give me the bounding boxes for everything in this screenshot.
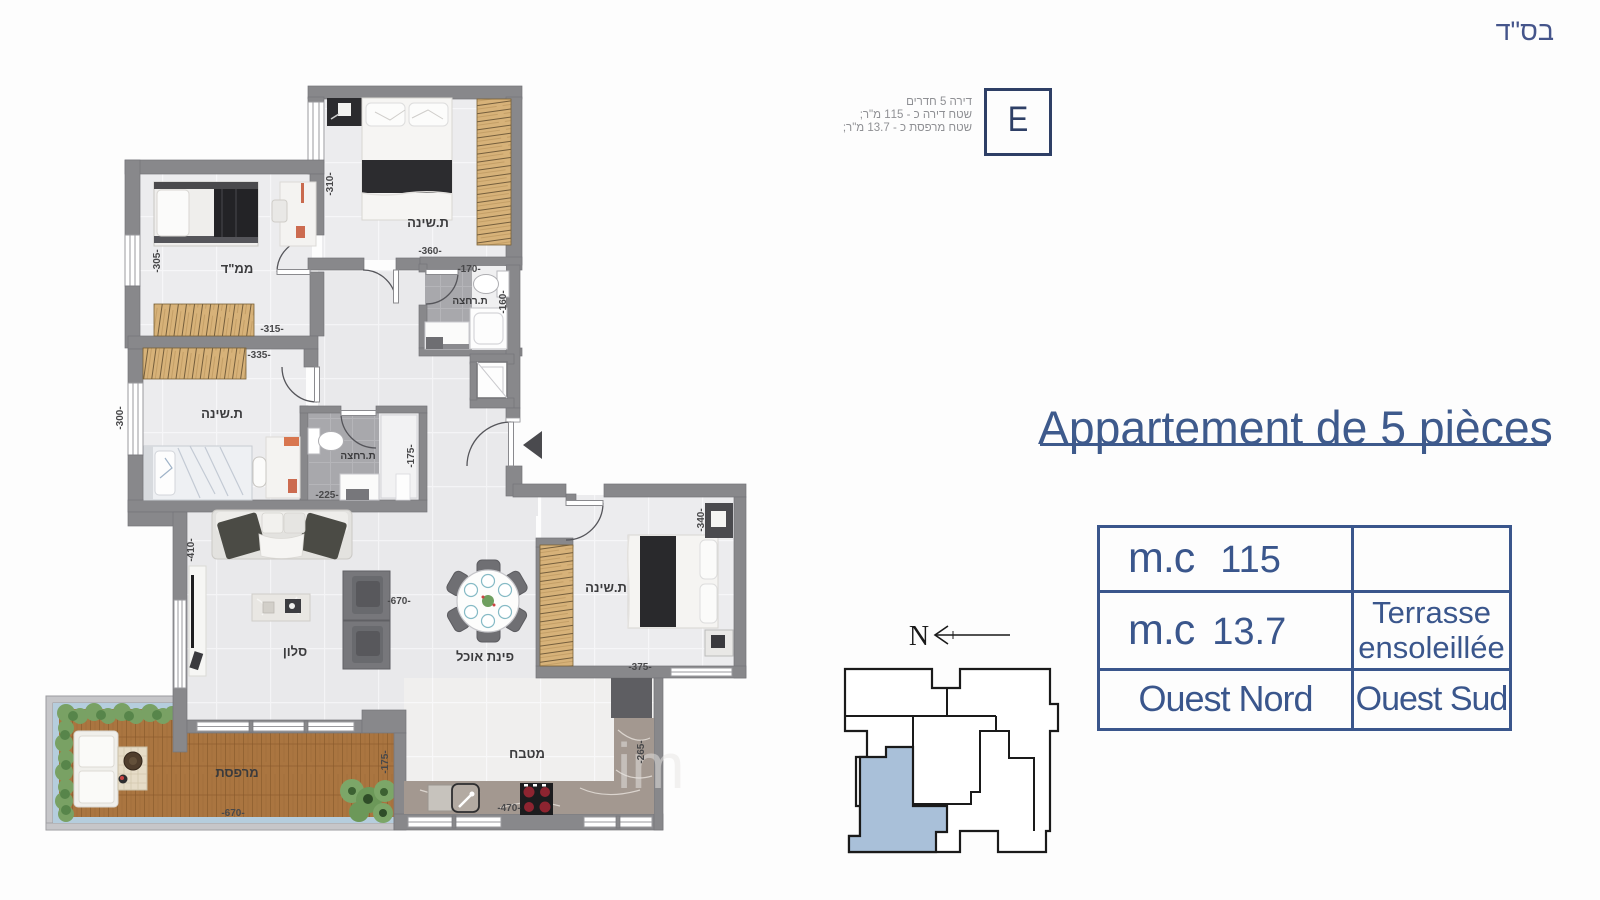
svg-text:-265-: -265- (636, 740, 647, 763)
svg-text:-375-: -375- (628, 662, 651, 673)
svg-text:-670-: -670- (221, 808, 244, 819)
svg-text:-305-: -305- (152, 249, 163, 272)
svg-text:ת.רחצה: ת.רחצה (452, 296, 487, 307)
svg-text:-315-: -315- (260, 324, 283, 335)
svg-text:-175-: -175- (406, 444, 417, 467)
svg-text:-310-: -310- (325, 172, 336, 195)
svg-text:-175-: -175- (380, 750, 391, 773)
svg-text:ת.שינה: ת.שינה (407, 215, 449, 230)
svg-text:ת.רחצה: ת.רחצה (340, 451, 375, 462)
svg-text:ת.שינה: ת.שינה (201, 406, 243, 421)
svg-text:-340-: -340- (696, 508, 707, 531)
svg-text:-300-: -300- (115, 406, 126, 429)
svg-text:-170-: -170- (457, 264, 480, 275)
svg-text:-670-: -670- (387, 596, 410, 607)
svg-text:im: im (617, 730, 685, 802)
svg-text:-335-: -335- (247, 350, 270, 361)
svg-text:פינת אוכל: פינת אוכל (456, 649, 514, 664)
svg-text:-360-: -360- (418, 246, 441, 257)
svg-text:-160-: -160- (498, 290, 509, 313)
svg-text:N: N (909, 621, 929, 652)
svg-text:ת.שינה: ת.שינה (585, 580, 627, 595)
svg-text:-225-: -225- (315, 490, 338, 501)
svg-text:-410-: -410- (186, 538, 197, 561)
svg-text:מטבח: מטבח (509, 746, 545, 761)
svg-text:סלון: סלון (283, 644, 307, 659)
svg-text:מרפסת: מרפסת (215, 765, 258, 780)
svg-text:ממ"ד: ממ"ד (221, 261, 254, 276)
svg-text:-470-: -470- (497, 803, 520, 814)
